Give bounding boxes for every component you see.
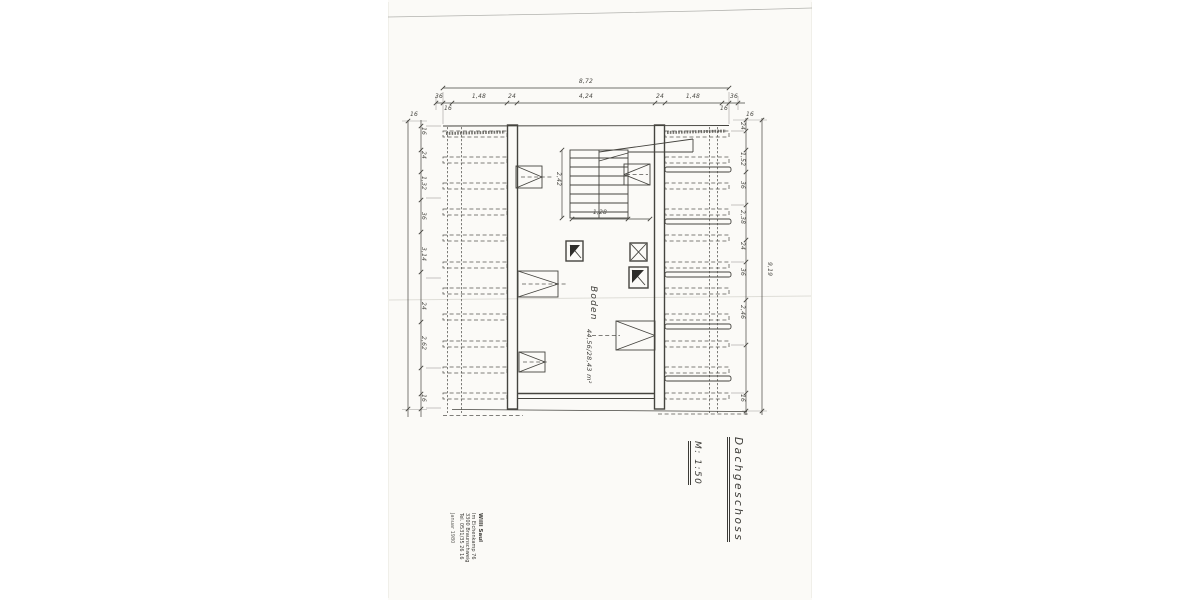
dim-top-total: 8,72 (579, 79, 593, 85)
dim-right-3: 2,38 (739, 210, 745, 224)
vent-shaft-x (630, 243, 647, 261)
dim-top-8: 36 (730, 94, 738, 100)
room-name: Boden (588, 286, 597, 321)
dim-left-1: 24 (420, 151, 426, 159)
stamp-address-line3: Tel. 0531/35 26 16 (458, 513, 464, 562)
room-outline (443, 125, 748, 416)
stamp-name: Willi Saul (476, 513, 483, 562)
dim-top-3: 24 (508, 94, 516, 100)
skylight-top-left (516, 166, 553, 188)
stamp-date: Januar 1980 (449, 513, 455, 562)
room-area: 44,56/28,43 m² (585, 329, 592, 384)
dim-right-4: 24 (739, 242, 745, 250)
dim-left-7: 16 (420, 394, 426, 402)
skylight-mid-left (518, 271, 568, 297)
dim-right-2: 36 (739, 181, 745, 189)
dim-top-6: 1,48 (686, 94, 700, 100)
drawing-title: Dachgeschoss (728, 437, 744, 542)
stamp-address-line1: Im Eichenkamp 76 (470, 513, 476, 562)
dimension-chain-left (402, 119, 441, 417)
dim-left-5: 24 (420, 302, 426, 310)
dim-right-5: 36 (739, 268, 745, 276)
dim-right-total: 9,19 (766, 262, 772, 276)
dimension-chain-right (731, 118, 767, 415)
dim-top-4: 4,24 (579, 94, 593, 100)
skylight-mid-right (592, 321, 655, 350)
dim-corner-left: 16 (410, 112, 418, 118)
dim-top-5: 24 (656, 94, 664, 100)
drawing-scale: M: 1:50 (688, 441, 701, 485)
dim-left-3: 36 (420, 212, 426, 220)
dim-top-0: 36 (435, 94, 443, 100)
scan-artifacts (388, 2, 812, 598)
dim-stair-run: 2,42 (555, 172, 561, 186)
chimney-left (566, 241, 583, 261)
dim-left-0: 16 (420, 127, 426, 135)
chimney-right (629, 267, 648, 288)
dim-left-6: 2,62 (420, 336, 426, 350)
stamp-address-line2: 3300 Braunschweig (464, 513, 470, 562)
dim-left-4: 3,14 (420, 247, 426, 261)
dim-left-2: 1,32 (420, 176, 426, 190)
floor-plan-drawing (0, 0, 1200, 600)
dim-right-0: 24 (739, 122, 745, 130)
skylight-bottom-left (519, 352, 548, 372)
dimension-chain-top (434, 86, 745, 124)
dim-top-2: 1,48 (472, 94, 486, 100)
left-rafters (443, 127, 507, 413)
dim-right-7: 16 (739, 394, 745, 402)
dim-right-1: 1,52 (739, 152, 745, 166)
dim-top-1: 16 (444, 106, 452, 112)
dim-top-7: 16 (720, 106, 728, 112)
architect-stamp: Willi Saul Im Eichenkamp 76 3300 Braunsc… (449, 513, 483, 562)
dim-stair-width: 1,28 (593, 210, 607, 216)
dim-corner-right: 16 (746, 112, 754, 118)
dim-right-6: 2,46 (739, 305, 745, 319)
right-rafters (665, 127, 731, 413)
